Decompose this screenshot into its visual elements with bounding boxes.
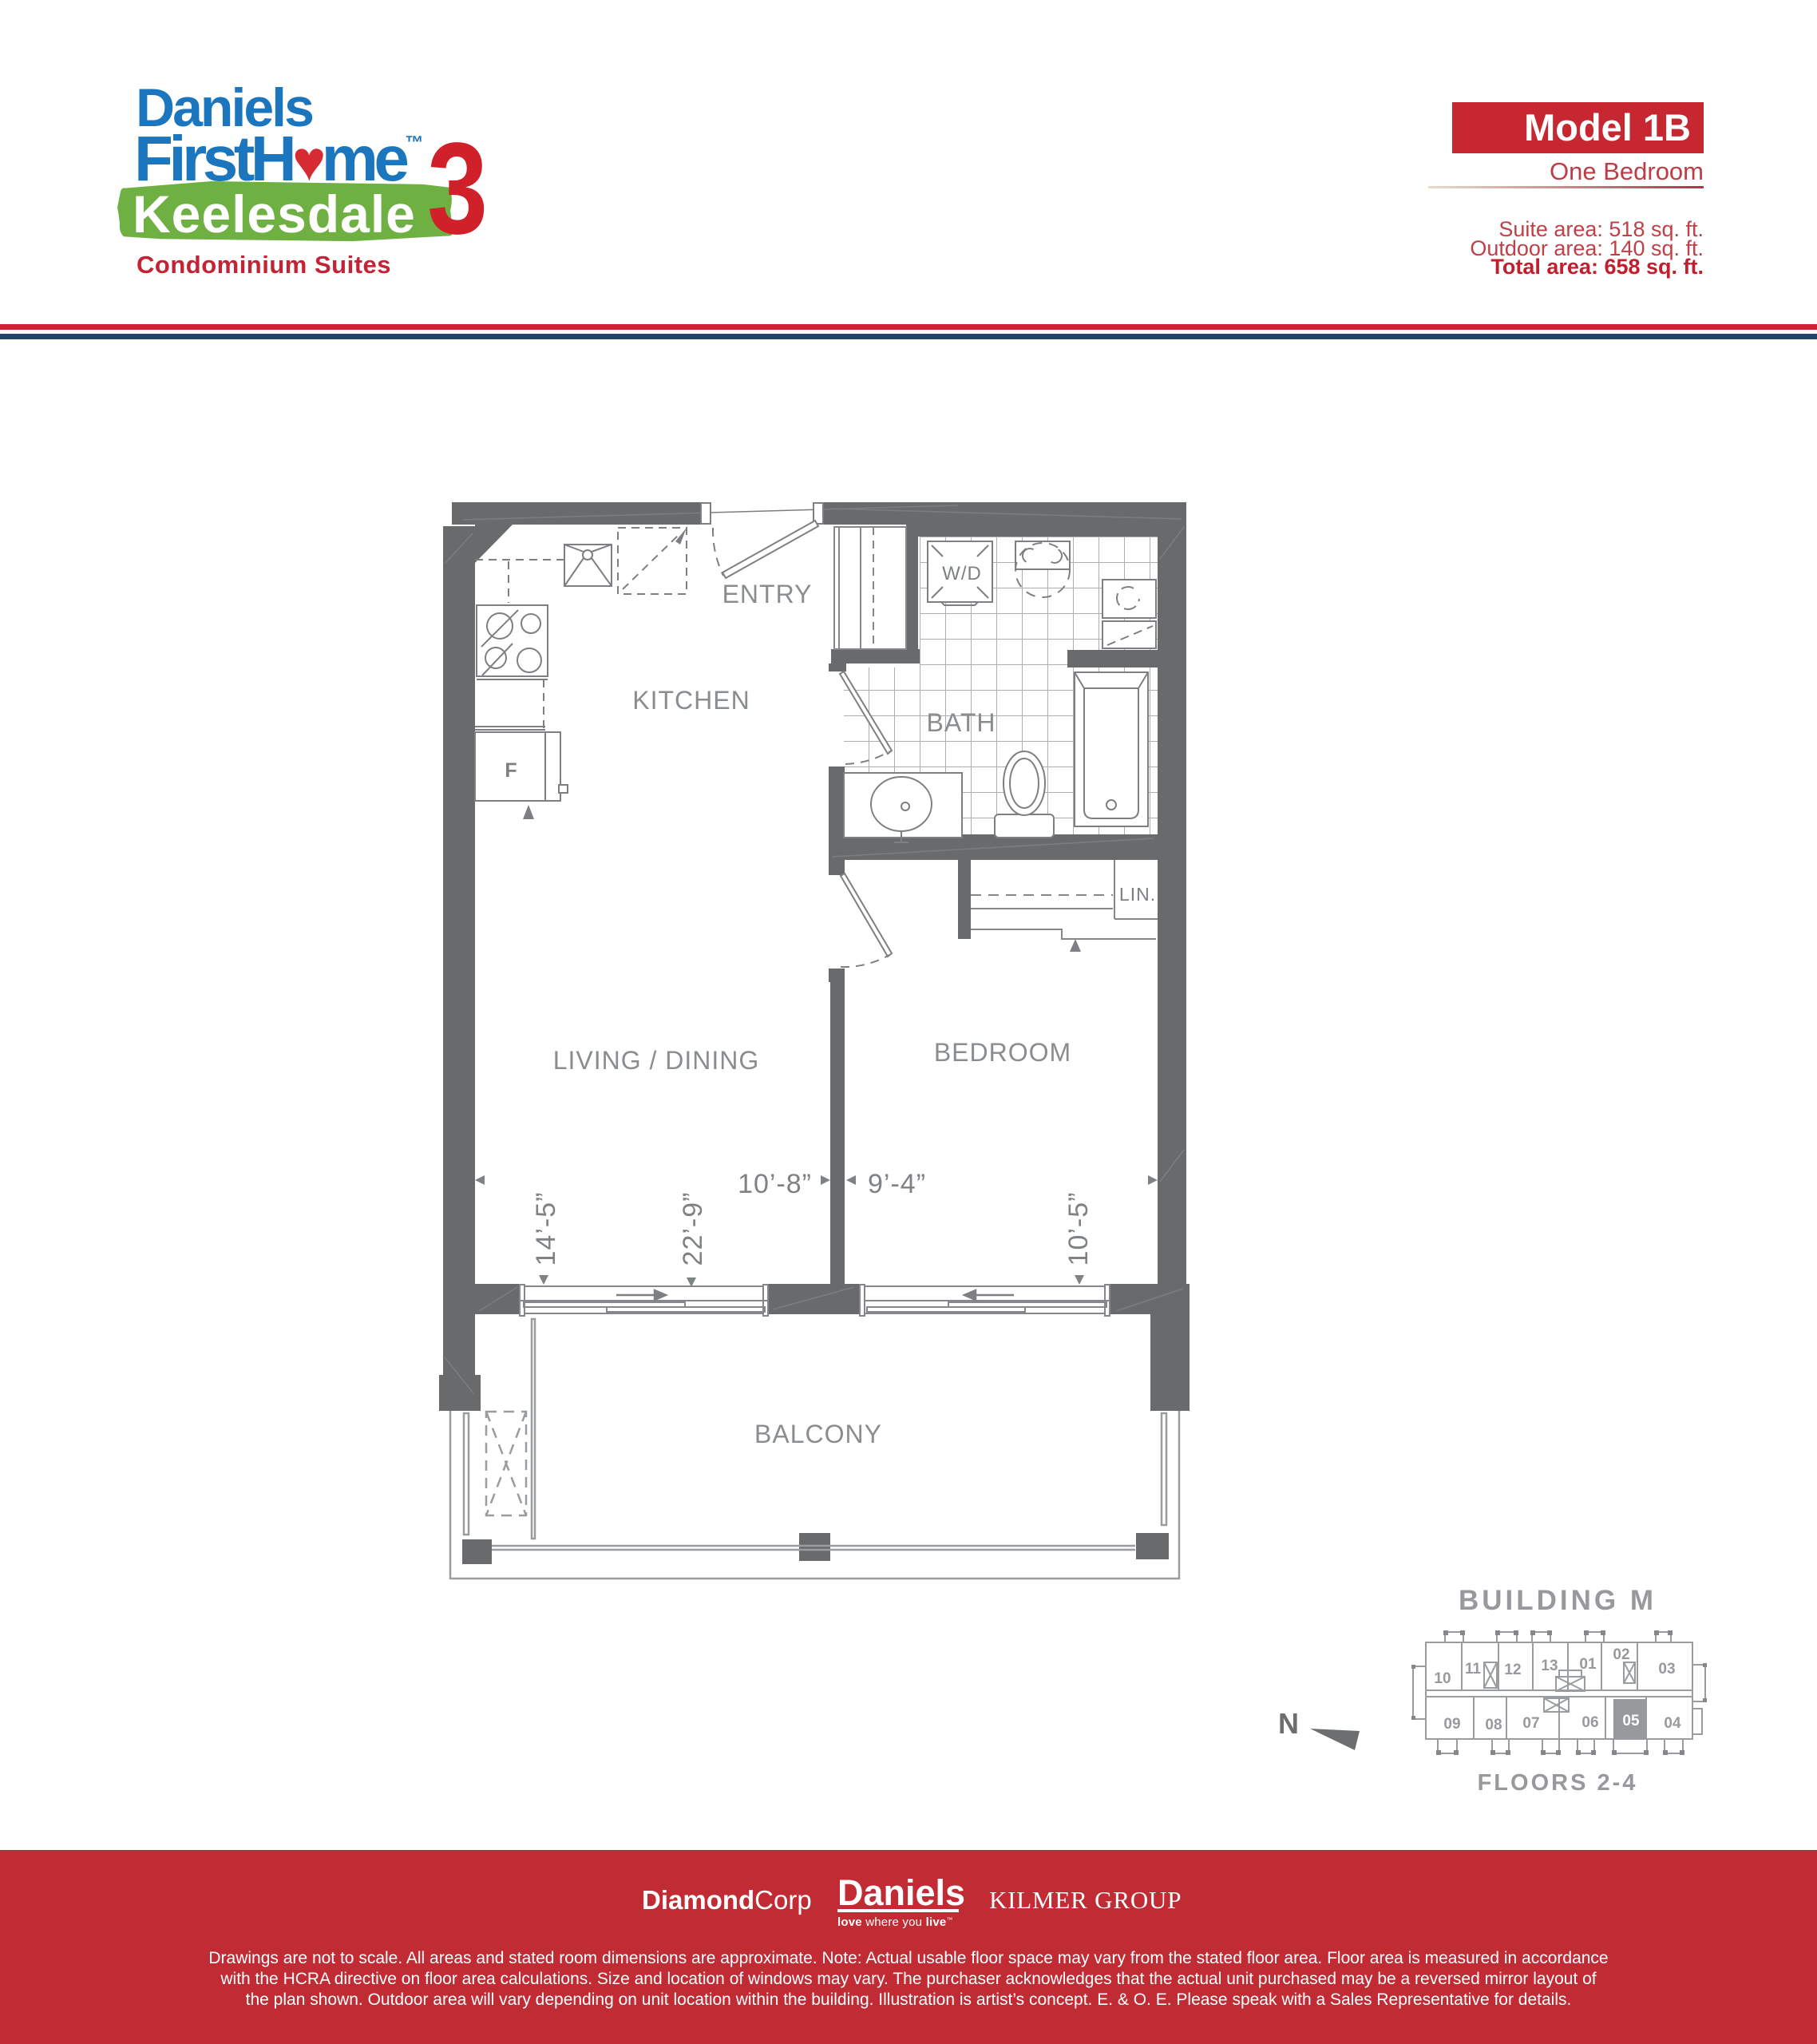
svg-text:06: 06	[1581, 1714, 1598, 1731]
svg-text:14’-5”: 14’-5”	[531, 1192, 561, 1266]
svg-text:9’-4”: 9’-4”	[868, 1169, 926, 1199]
svg-text:W/D: W/D	[942, 563, 982, 584]
svg-text:08: 08	[1485, 1717, 1502, 1733]
svg-text:F: F	[505, 759, 517, 782]
svg-text:FLOORS 2-4: FLOORS 2-4	[1478, 1770, 1638, 1796]
svg-text:BALCONY: BALCONY	[754, 1420, 882, 1448]
svg-text:BEDROOM: BEDROOM	[934, 1038, 1071, 1067]
svg-text:03: 03	[1658, 1661, 1675, 1678]
svg-text:LIN.: LIN.	[1119, 884, 1156, 905]
svg-text:13: 13	[1541, 1658, 1558, 1674]
svg-text:BATH: BATH	[927, 708, 996, 737]
svg-text:02: 02	[1613, 1646, 1629, 1663]
svg-text:11: 11	[1465, 1661, 1482, 1678]
svg-text:KITCHEN: KITCHEN	[632, 686, 750, 715]
svg-text:01: 01	[1579, 1656, 1597, 1673]
svg-text:ENTRY: ENTRY	[722, 580, 813, 608]
svg-text:07: 07	[1522, 1715, 1539, 1732]
svg-text:04: 04	[1664, 1715, 1681, 1732]
svg-text:09: 09	[1443, 1716, 1460, 1733]
svg-text:05: 05	[1622, 1713, 1640, 1729]
svg-text:12: 12	[1504, 1662, 1521, 1678]
svg-text:LIVING / DINING: LIVING / DINING	[553, 1046, 760, 1075]
svg-text:N: N	[1278, 1707, 1299, 1740]
svg-text:10: 10	[1434, 1670, 1451, 1687]
svg-text:10’-5”: 10’-5”	[1063, 1192, 1094, 1266]
svg-text:10’-8”: 10’-8”	[738, 1169, 812, 1199]
svg-text:BUILDING M: BUILDING M	[1459, 1585, 1657, 1616]
svg-text:22’-9”: 22’-9”	[678, 1192, 708, 1266]
